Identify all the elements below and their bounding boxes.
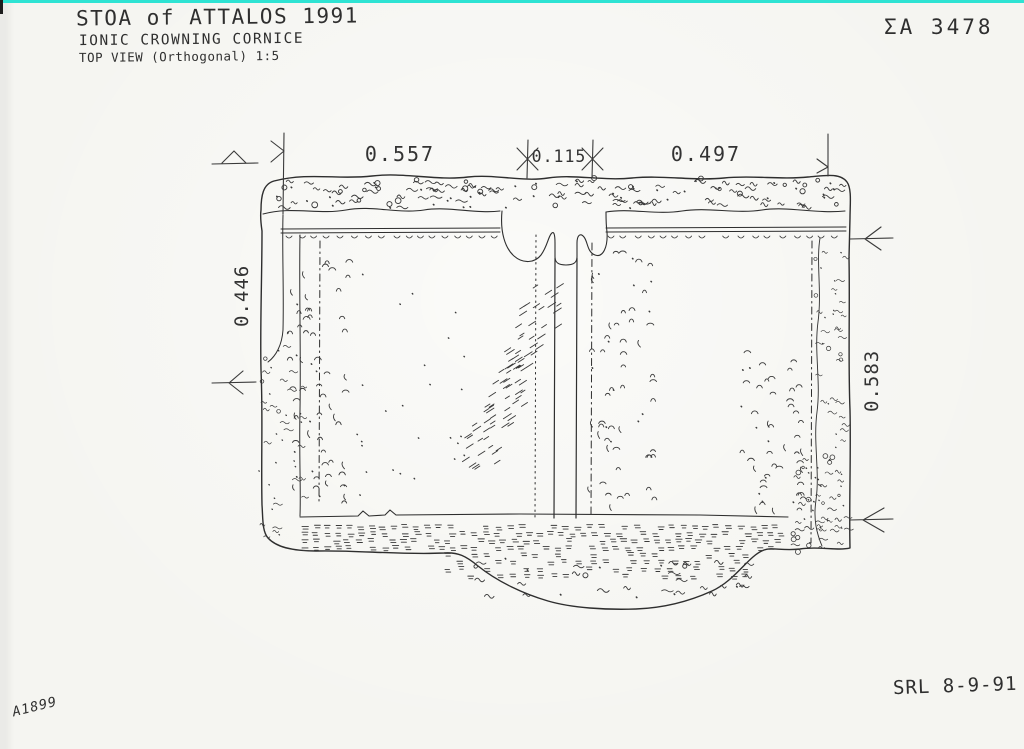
dimension-ticks — [212, 133, 893, 532]
scanned-drawing-sheet: STOA of ATTALOS 1991 IONIC CROWNING CORN… — [0, 0, 1024, 749]
cornice-drawing-svg — [0, 0, 1024, 749]
center-joint-channel — [535, 235, 592, 518]
stone-texture-marks — [259, 176, 853, 599]
